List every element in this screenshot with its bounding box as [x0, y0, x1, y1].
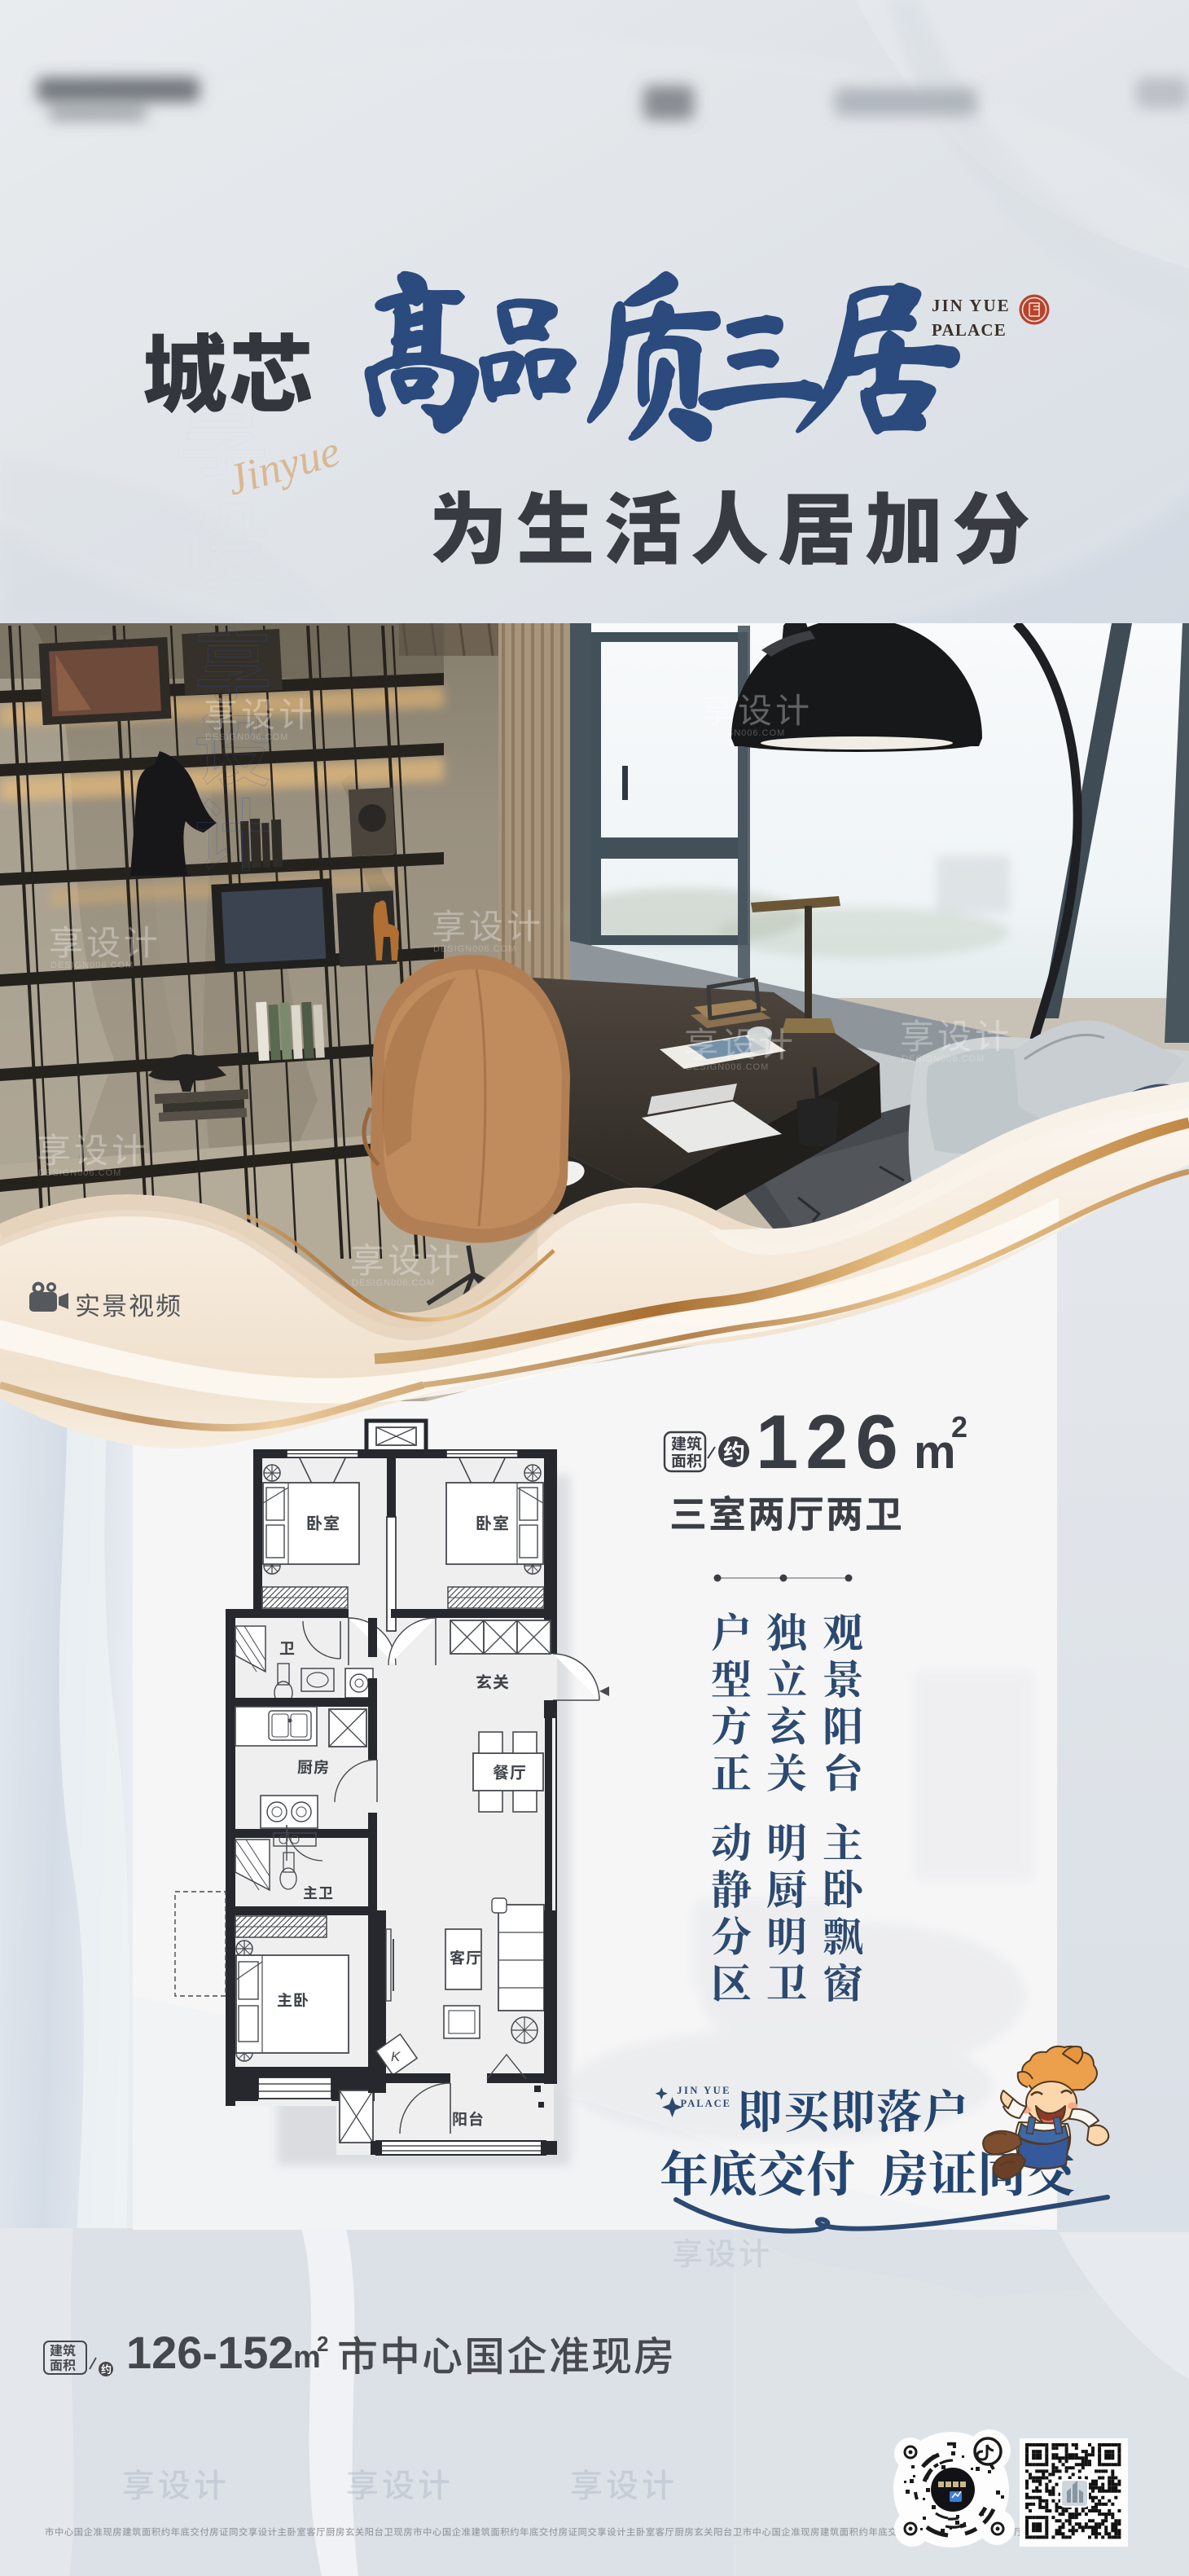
svg-text:DESIGN006.COM: DESIGN006.COM: [205, 732, 288, 742]
svg-text:JIN YUE: JIN YUE: [677, 2085, 731, 2096]
svg-text:2: 2: [317, 2332, 328, 2356]
svg-text:DESIGN006.COM: DESIGN006.COM: [902, 1054, 985, 1064]
svg-text:K: K: [391, 2049, 401, 2064]
svg-text:DESIGN006.COM: DESIGN006.COM: [352, 1278, 435, 1288]
svg-text:PALACE: PALACE: [932, 320, 1007, 340]
svg-text:2: 2: [951, 1410, 967, 1444]
svg-text:126: 126: [756, 1399, 906, 1484]
svg-text:DESIGN006.COM: DESIGN006.COM: [686, 1062, 769, 1072]
svg-text:126-152: 126-152: [126, 2327, 294, 2378]
svg-text:m: m: [914, 1426, 956, 1479]
svg-text:DESIGN006.COM: DESIGN006.COM: [702, 728, 785, 738]
svg-text:PALACE: PALACE: [681, 2098, 731, 2109]
svg-text:DESIGN006.COM: DESIGN006.COM: [433, 944, 516, 954]
svg-text:JIN YUE: JIN YUE: [932, 296, 1011, 315]
svg-text:DESIGN006.COM: DESIGN006.COM: [50, 961, 134, 970]
svg-text:DESIGN006.COM: DESIGN006.COM: [38, 1168, 121, 1178]
